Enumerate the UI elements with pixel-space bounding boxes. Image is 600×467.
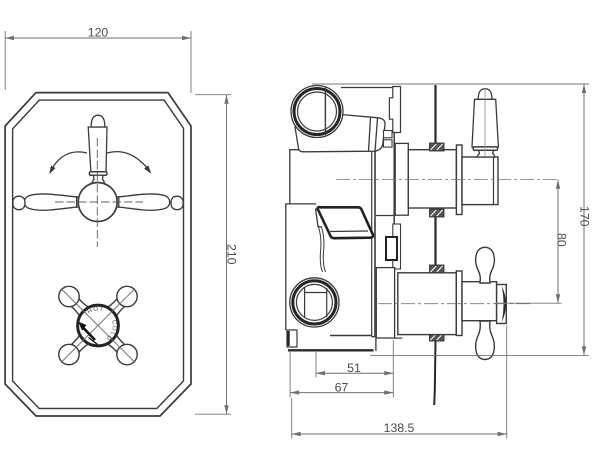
- svg-text:80: 80: [555, 233, 569, 247]
- svg-text:138.5: 138.5: [384, 421, 415, 435]
- svg-text:51: 51: [347, 361, 361, 375]
- svg-text:67: 67: [335, 380, 349, 394]
- svg-text:170: 170: [578, 206, 592, 227]
- svg-text:210: 210: [225, 244, 239, 265]
- svg-text:120: 120: [88, 26, 109, 40]
